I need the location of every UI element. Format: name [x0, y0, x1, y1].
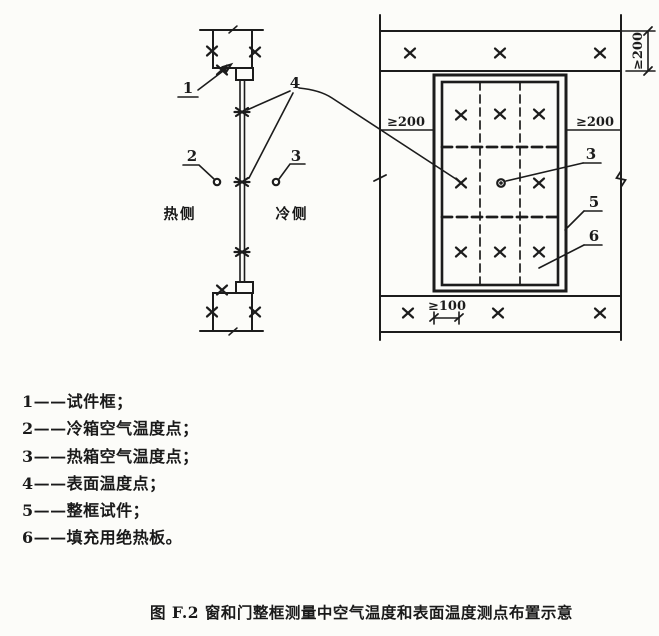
surface-temp-point-x: [403, 309, 413, 318]
callout-3-section: 3: [291, 147, 301, 165]
legend-item-5: 5——整框试件；: [22, 497, 199, 524]
legend-item-6: 6——填充用绝热板。: [22, 524, 199, 551]
surface-temp-point-x: [456, 179, 466, 188]
surface-temp-point-x: [495, 110, 505, 119]
specimen-frame-bottom-block: [213, 293, 252, 331]
specimen-frame-top-step: [236, 68, 253, 80]
callout-5: 5: [589, 193, 599, 211]
specimen-frame-top-block: [213, 30, 252, 68]
callout-2: 2: [187, 147, 197, 165]
front-view: ≥200 ≥200 ≥200 ≥100 3 5: [374, 15, 655, 340]
cold-side-label: 冷侧: [276, 205, 309, 223]
legend: 1——试件框； 2——冷箱空气温度点； 3——热箱空气温度点； 4——表面温度点…: [22, 388, 199, 552]
surface-temp-point-x: [595, 309, 605, 318]
specimen-frame-bottom-step: [236, 282, 253, 293]
surface-temp-point-x: [495, 49, 505, 58]
surface-temp-point-x: [495, 248, 505, 257]
surface-temp-point-x: [534, 248, 544, 257]
surface-temp-point-x: [405, 49, 415, 58]
callout-3-front: 3: [586, 145, 596, 163]
hot-air-temp-point-front-dot: [500, 182, 502, 184]
dim-right: ≥200: [576, 115, 614, 130]
surface-temp-point-x: [235, 248, 250, 256]
scanned-figure-page: 1 2 3 4 热侧 冷侧: [0, 0, 659, 636]
legend-item-3: 3——热箱空气温度点；: [22, 443, 199, 470]
callout-1: 1: [183, 79, 193, 97]
legend-item-2: 2——冷箱空气温度点；: [22, 415, 199, 442]
surface-temp-point-x: [595, 49, 605, 58]
legend-item-4: 4——表面温度点；: [22, 470, 199, 497]
surface-temp-point-x: [493, 309, 503, 318]
figure-caption: 图 F.2 窗和门整框测量中空气温度和表面温度测点布置示意: [150, 601, 573, 623]
callout-3-section-leader: [279, 164, 305, 179]
callout-6-leader: [539, 245, 584, 268]
dim-left: ≥200: [387, 115, 425, 130]
hot-side-label: 热侧: [164, 205, 197, 223]
section-view: 1 2 3 4 热侧 冷侧: [164, 26, 460, 335]
surface-temp-point-x: [235, 178, 250, 186]
callout-1-leader: [198, 68, 227, 90]
cold-air-temp-point: [214, 179, 220, 185]
hot-air-temp-point: [273, 179, 279, 185]
dim-top-vertical: ≥200: [631, 32, 646, 70]
surface-temp-point-x: [534, 179, 544, 188]
surface-temp-point-x: [456, 248, 466, 257]
surface-temp-point-x: [456, 111, 466, 120]
callout-5-leader: [565, 211, 584, 230]
callout-6: 6: [589, 227, 599, 245]
surface-temp-point-x: [534, 110, 544, 119]
legend-item-1: 1——试件框；: [22, 388, 199, 415]
callout-4: 4: [290, 74, 300, 92]
callout-2-leader: [183, 165, 214, 179]
callout-4-leader-upper: [247, 91, 290, 110]
